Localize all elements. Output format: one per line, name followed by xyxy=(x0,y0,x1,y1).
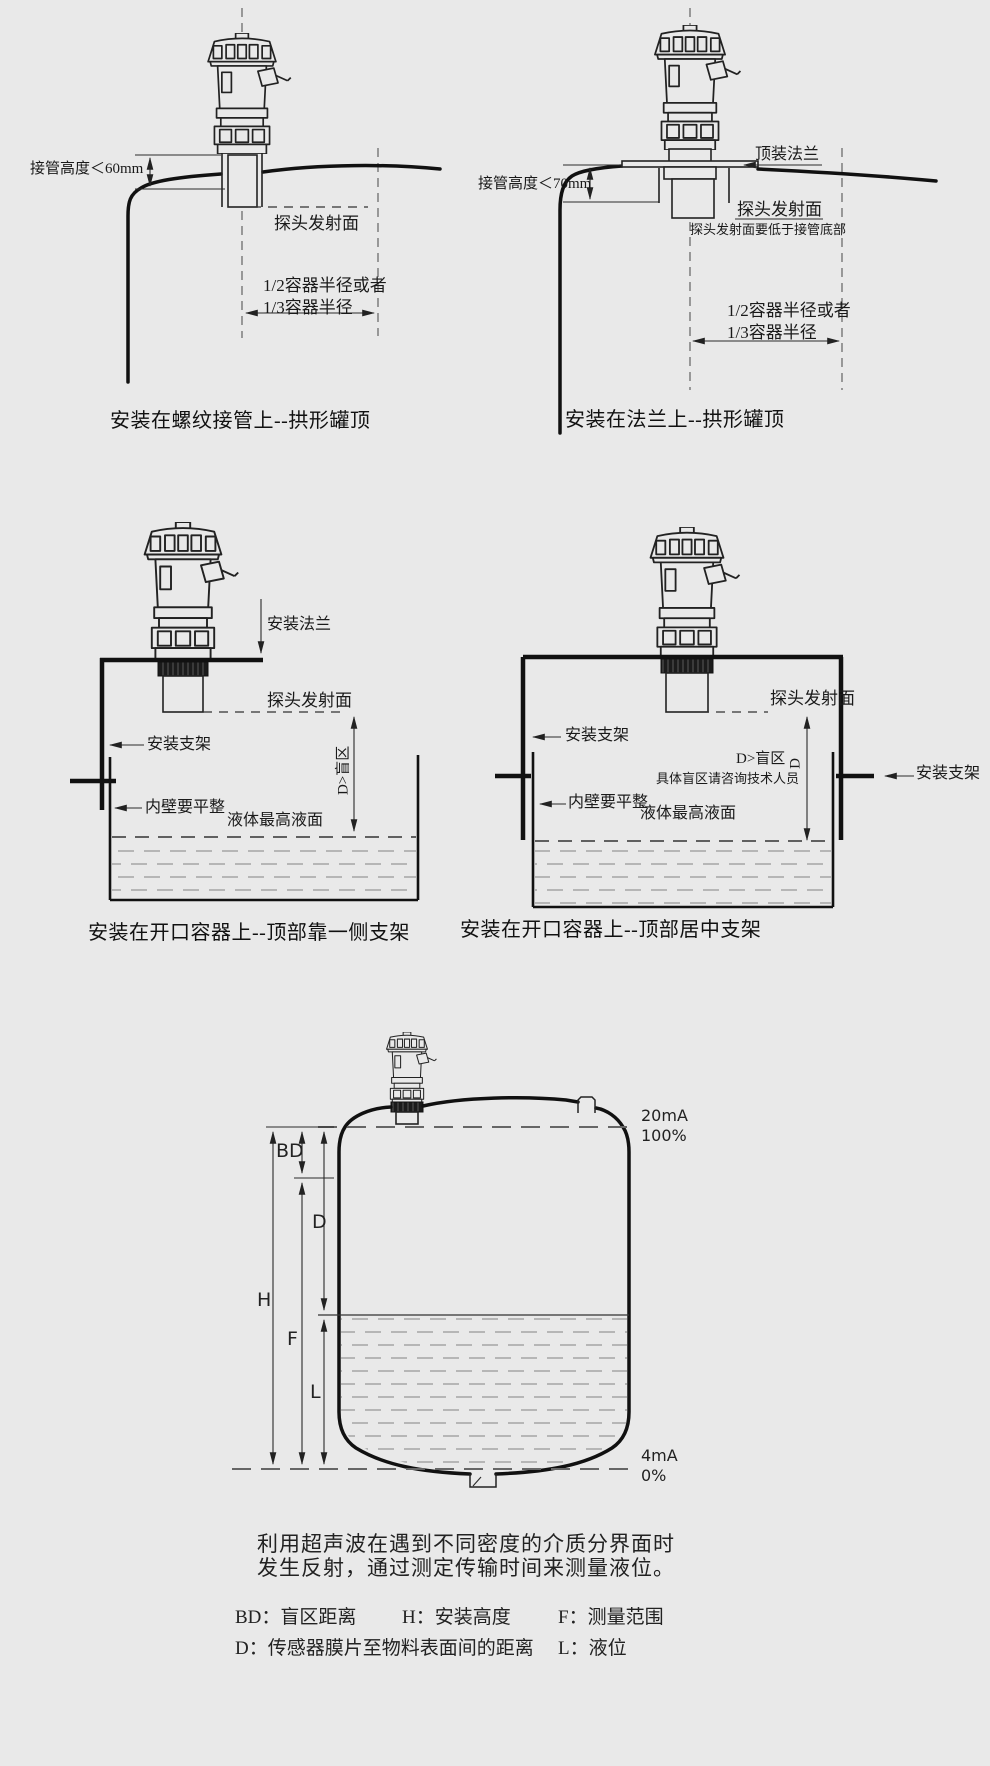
drawing-threaded-mount xyxy=(128,8,440,382)
legend-item-d: D：传感器膜片至物料表面间的距离 xyxy=(235,1638,534,1659)
bracket-label-right: 安装支架 xyxy=(916,765,980,783)
legend-item-bd: BD：盲区距离 xyxy=(235,1607,356,1628)
dim-label-l: L xyxy=(310,1382,321,1403)
dim-label-h: H xyxy=(257,1290,271,1311)
drawing-open-vessel-side-bracket xyxy=(70,522,418,900)
legend-item-h: H：安装高度 xyxy=(402,1607,511,1628)
wall-flat-note: 内壁要平整 xyxy=(568,794,648,812)
output-min-ma-label: 4mA xyxy=(641,1447,678,1465)
caption-flange-mount: 安装在法兰上--拱形罐顶 xyxy=(565,409,784,431)
drawing-measurement-tank xyxy=(232,1032,638,1487)
probe-face-note: 探头发射面要低于接管底部 xyxy=(690,223,846,238)
radius-label-line1: 1/2容器半径或者 xyxy=(727,301,851,320)
max-liquid-level-label: 液体最高液面 xyxy=(227,812,323,830)
blind-zone-label: D>盲区 xyxy=(736,751,785,768)
probe-face-label: 探头发射面 xyxy=(267,691,352,710)
mount-flange-label: 安装法兰 xyxy=(267,616,331,634)
principle-description-line1: 利用超声波在遇到不同密度的介质分界面时 xyxy=(257,1533,675,1557)
output-max-ma-label: 20mA xyxy=(641,1107,688,1125)
dim-label-f: F xyxy=(287,1329,298,1350)
probe-face-label: 探头发射面 xyxy=(274,214,359,233)
wall-flat-note: 内壁要平整 xyxy=(145,799,225,817)
dim-label-d: D xyxy=(312,1212,327,1233)
ultrasonic-level-sensor-installation-page: 接管高度＜60mm 探头发射面 1/2容器半径或者 1/3容器半径 安装在螺纹接… xyxy=(0,0,990,1766)
radius-label-line2: 1/3容器半径 xyxy=(263,298,353,317)
output-min-percent-label: 0% xyxy=(641,1467,666,1485)
caption-center-bracket: 安装在开口容器上--顶部居中支架 xyxy=(460,919,761,941)
legend-item-l: L：液位 xyxy=(558,1638,627,1659)
bracket-label: 安装支架 xyxy=(147,736,211,754)
drawing-flange-mount xyxy=(560,8,936,433)
radius-label-line2: 1/3容器半径 xyxy=(727,323,817,342)
nozzle-height-label: 接管高度＜70mm xyxy=(478,176,591,193)
nozzle-height-label: 接管高度＜60mm xyxy=(30,161,143,178)
dim-label-bd: BD xyxy=(276,1141,304,1162)
probe-face-label: 探头发射面 xyxy=(770,689,855,708)
top-flange-label: 顶装法兰 xyxy=(755,146,819,164)
drawing-open-vessel-center-bracket xyxy=(495,527,914,907)
caption-threaded-mount: 安装在螺纹接管上--拱形罐顶 xyxy=(110,410,370,432)
installation-diagrams-drawing xyxy=(0,0,990,1766)
probe-face-label: 探头发射面 xyxy=(737,200,822,219)
principle-description-line2: 发生反射，通过测定传输时间来测量液位。 xyxy=(257,1557,675,1581)
caption-side-bracket: 安装在开口容器上--顶部靠一侧支架 xyxy=(88,922,410,944)
radius-label-line1: 1/2容器半径或者 xyxy=(263,276,387,295)
output-max-percent-label: 100% xyxy=(641,1127,687,1145)
blind-zone-consult-note: 具体盲区请咨询技术人员 xyxy=(656,772,799,787)
bracket-label-left: 安装支架 xyxy=(565,727,629,745)
blind-zone-dim-letter: D xyxy=(788,755,805,771)
max-liquid-level-label: 液体最高液面 xyxy=(640,805,736,823)
blind-zone-label: D>盲区 xyxy=(336,733,353,807)
legend-item-f: F：测量范围 xyxy=(558,1607,664,1628)
